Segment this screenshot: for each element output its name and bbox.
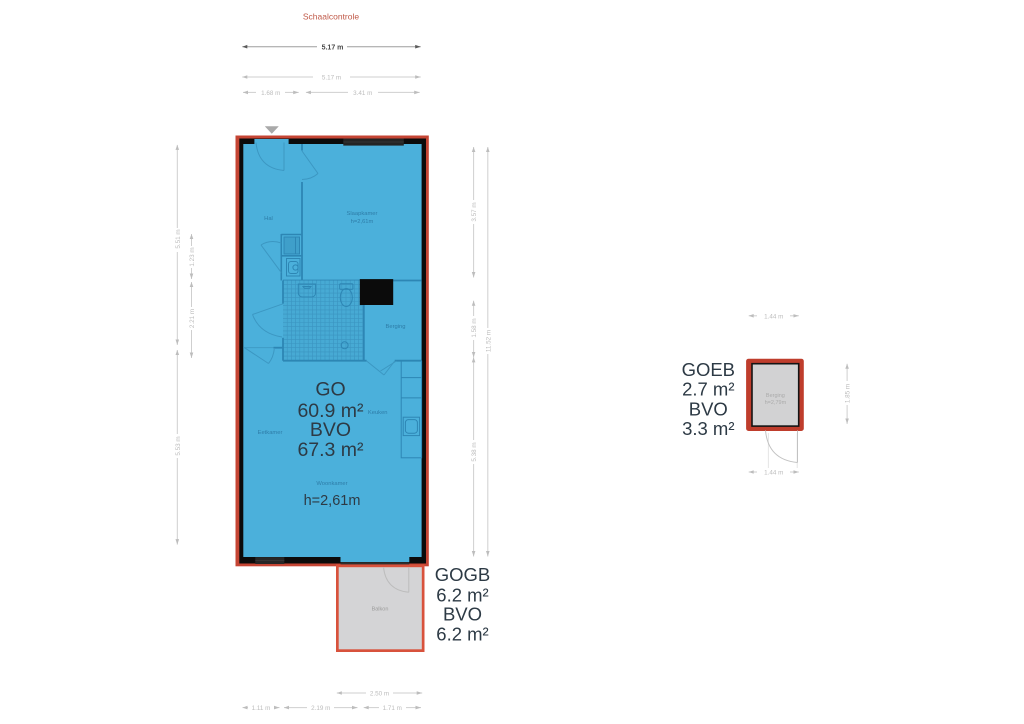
svg-text:3.41 m: 3.41 m [353,90,372,97]
svg-text:GOGB: GOGB [435,564,491,585]
svg-text:5.38 m: 5.38 m [471,442,478,461]
svg-text:Keuken: Keuken [368,410,388,416]
svg-text:Balkon: Balkon [372,607,389,613]
svg-text:1.71 m: 1.71 m [383,705,402,712]
svg-text:Berging: Berging [766,393,785,399]
svg-text:2.21 m: 2.21 m [189,309,196,328]
svg-text:GOEB: GOEB [682,359,735,380]
svg-text:67.3 m²: 67.3 m² [297,439,364,461]
svg-text:5.51 m: 5.51 m [175,229,182,248]
svg-text:1.11 m: 1.11 m [252,705,271,712]
svg-text:5.53 m: 5.53 m [175,436,182,455]
svg-text:h=2,79m: h=2,79m [765,400,787,406]
svg-text:GO: GO [315,378,345,400]
svg-text:BVO: BVO [689,398,728,419]
svg-text:Berging: Berging [386,324,406,330]
svg-text:1.44 m: 1.44 m [764,313,783,320]
svg-text:3.3 m²: 3.3 m² [682,418,734,439]
svg-text:Eetkamer: Eetkamer [258,430,283,436]
svg-text:2.50 m: 2.50 m [370,691,389,698]
svg-text:Slaapkamer: Slaapkamer [347,211,378,217]
svg-text:h=2,61m: h=2,61m [304,493,361,509]
svg-text:3.57 m: 3.57 m [471,202,478,221]
svg-text:2.19 m: 2.19 m [311,705,330,712]
svg-text:h=2,61m: h=2,61m [351,219,374,225]
svg-text:1.58 m: 1.58 m [471,318,478,337]
svg-text:5.17 m: 5.17 m [322,75,341,82]
svg-text:BVO: BVO [310,419,351,441]
svg-text:1.85 m: 1.85 m [845,384,852,403]
svg-text:Woonkamer: Woonkamer [316,481,347,487]
svg-text:6.2 m²: 6.2 m² [436,584,488,605]
svg-text:BVO: BVO [443,603,482,624]
svg-text:2.7 m²: 2.7 m² [682,379,734,400]
svg-text:1.68 m: 1.68 m [261,90,280,97]
svg-text:1.44 m: 1.44 m [764,470,783,477]
svg-text:11.52 m: 11.52 m [485,330,492,352]
svg-text:6.2 m²: 6.2 m² [436,624,488,645]
svg-text:Schaalcontrole: Schaalcontrole [303,12,360,22]
svg-text:5.17 m: 5.17 m [322,44,344,51]
svg-text:1.23 m: 1.23 m [189,247,196,266]
svg-text:Hal: Hal [264,216,273,222]
